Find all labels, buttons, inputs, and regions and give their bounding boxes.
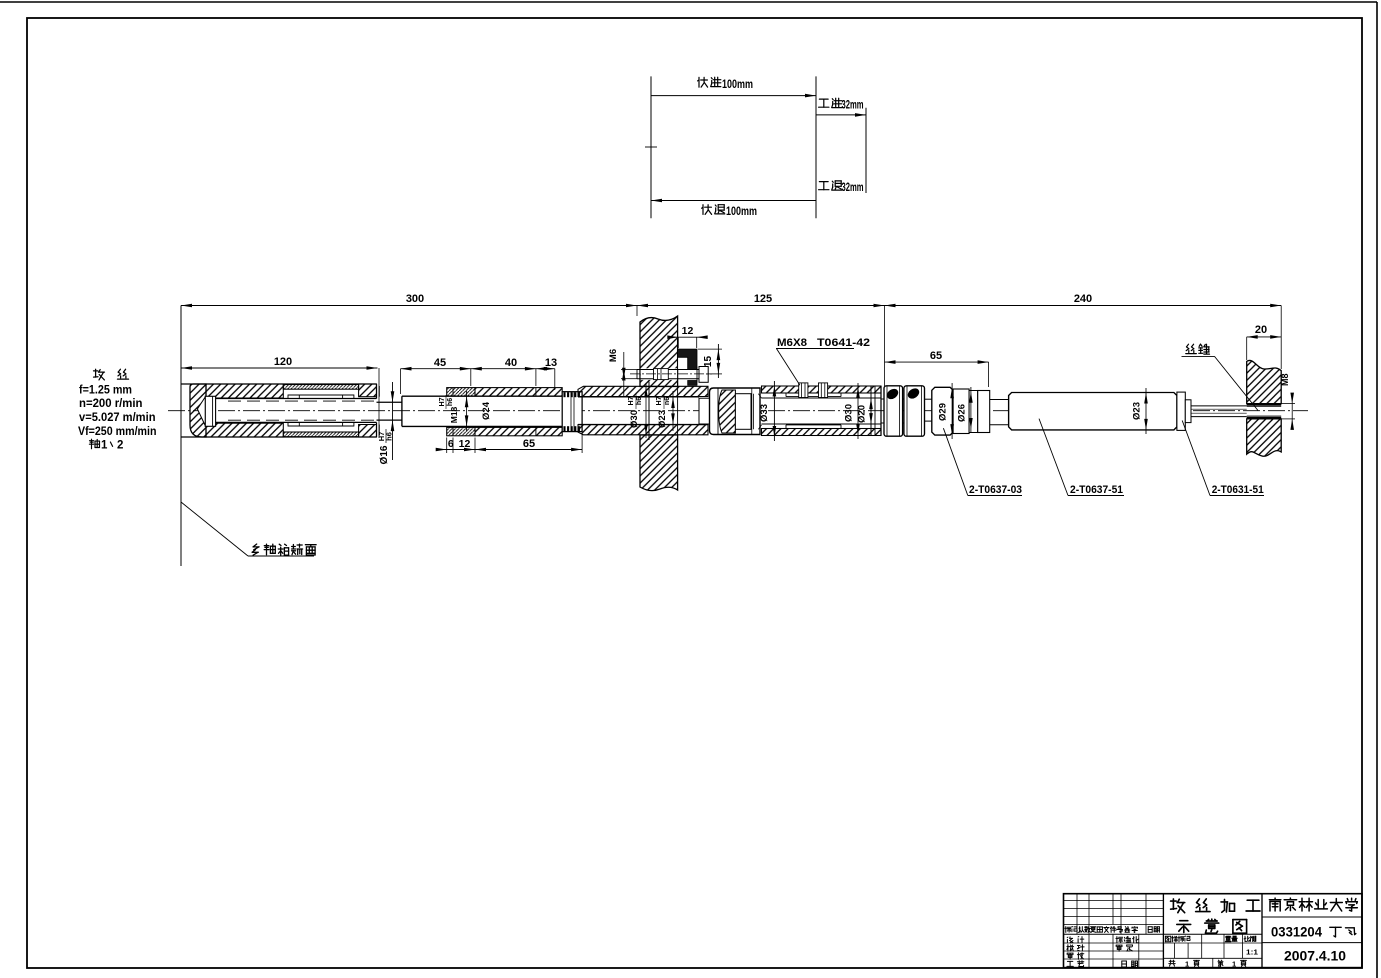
svg-text:Ø20: Ø20	[857, 405, 868, 423]
svg-text:1:1: 1:1	[1246, 948, 1258, 957]
svg-text:12: 12	[682, 325, 694, 337]
svg-text:h6: h6	[636, 397, 643, 405]
svg-text:32mm: 32mm	[842, 98, 864, 112]
svg-text:M6: M6	[608, 349, 619, 362]
svg-text:M8: M8	[1280, 374, 1290, 387]
svg-text:240: 240	[1074, 293, 1092, 305]
svg-text:Ø16: Ø16	[379, 445, 390, 464]
svg-text:2: 2	[117, 440, 123, 452]
svg-text:0331204: 0331204	[1271, 925, 1322, 940]
svg-text:1: 1	[1232, 959, 1236, 968]
svg-text:65: 65	[930, 350, 942, 362]
svg-text:n6: n6	[664, 397, 671, 405]
svg-text:Ø30: Ø30	[844, 404, 855, 422]
svg-text:2-T0637-51: 2-T0637-51	[1070, 484, 1123, 496]
svg-text:h6: h6	[447, 398, 454, 406]
svg-text:Ø26: Ø26	[957, 404, 968, 422]
svg-text:32mm: 32mm	[842, 180, 864, 194]
svg-text:125: 125	[754, 293, 772, 305]
svg-text:Ø23: Ø23	[657, 410, 668, 428]
svg-text:1: 1	[1185, 959, 1189, 968]
svg-text:2-T0631-51: 2-T0631-51	[1212, 484, 1264, 496]
svg-text:H7: H7	[628, 396, 635, 405]
svg-text:T0641-42: T0641-42	[817, 337, 870, 349]
svg-text:Ø23: Ø23	[1132, 402, 1143, 420]
svg-text:20: 20	[1255, 324, 1267, 336]
svg-text:H7: H7	[656, 396, 663, 405]
svg-text:2007.4.10: 2007.4.10	[1284, 949, 1346, 964]
svg-text:Ø30: Ø30	[629, 410, 640, 428]
svg-text:300: 300	[406, 293, 424, 305]
svg-text:Vf=250 mm/min: Vf=250 mm/min	[78, 426, 157, 438]
svg-text:100mm: 100mm	[722, 77, 753, 91]
svg-text:Ø24: Ø24	[481, 401, 492, 420]
svg-text:120: 120	[274, 356, 292, 368]
svg-text:M6X8: M6X8	[777, 337, 807, 349]
svg-text:40: 40	[505, 357, 517, 369]
svg-text:M18: M18	[449, 406, 459, 423]
svg-text:45: 45	[434, 357, 446, 369]
svg-text:Ø33: Ø33	[759, 404, 770, 422]
svg-text:2-T0637-03: 2-T0637-03	[969, 484, 1022, 496]
svg-text:v=5.027 m/min: v=5.027 m/min	[79, 412, 156, 424]
svg-text:H7: H7	[439, 397, 446, 406]
svg-text:1: 1	[101, 440, 108, 452]
svg-text:f=1.25 mm: f=1.25 mm	[79, 385, 132, 397]
svg-text:n=200 r/min: n=200 r/min	[79, 398, 143, 410]
svg-text:13: 13	[545, 357, 557, 369]
svg-text:15: 15	[703, 356, 714, 368]
svg-text:Ø29: Ø29	[938, 403, 949, 421]
svg-text:100mm: 100mm	[726, 204, 757, 218]
svg-text:65: 65	[523, 438, 535, 450]
svg-text:12: 12	[459, 438, 471, 450]
